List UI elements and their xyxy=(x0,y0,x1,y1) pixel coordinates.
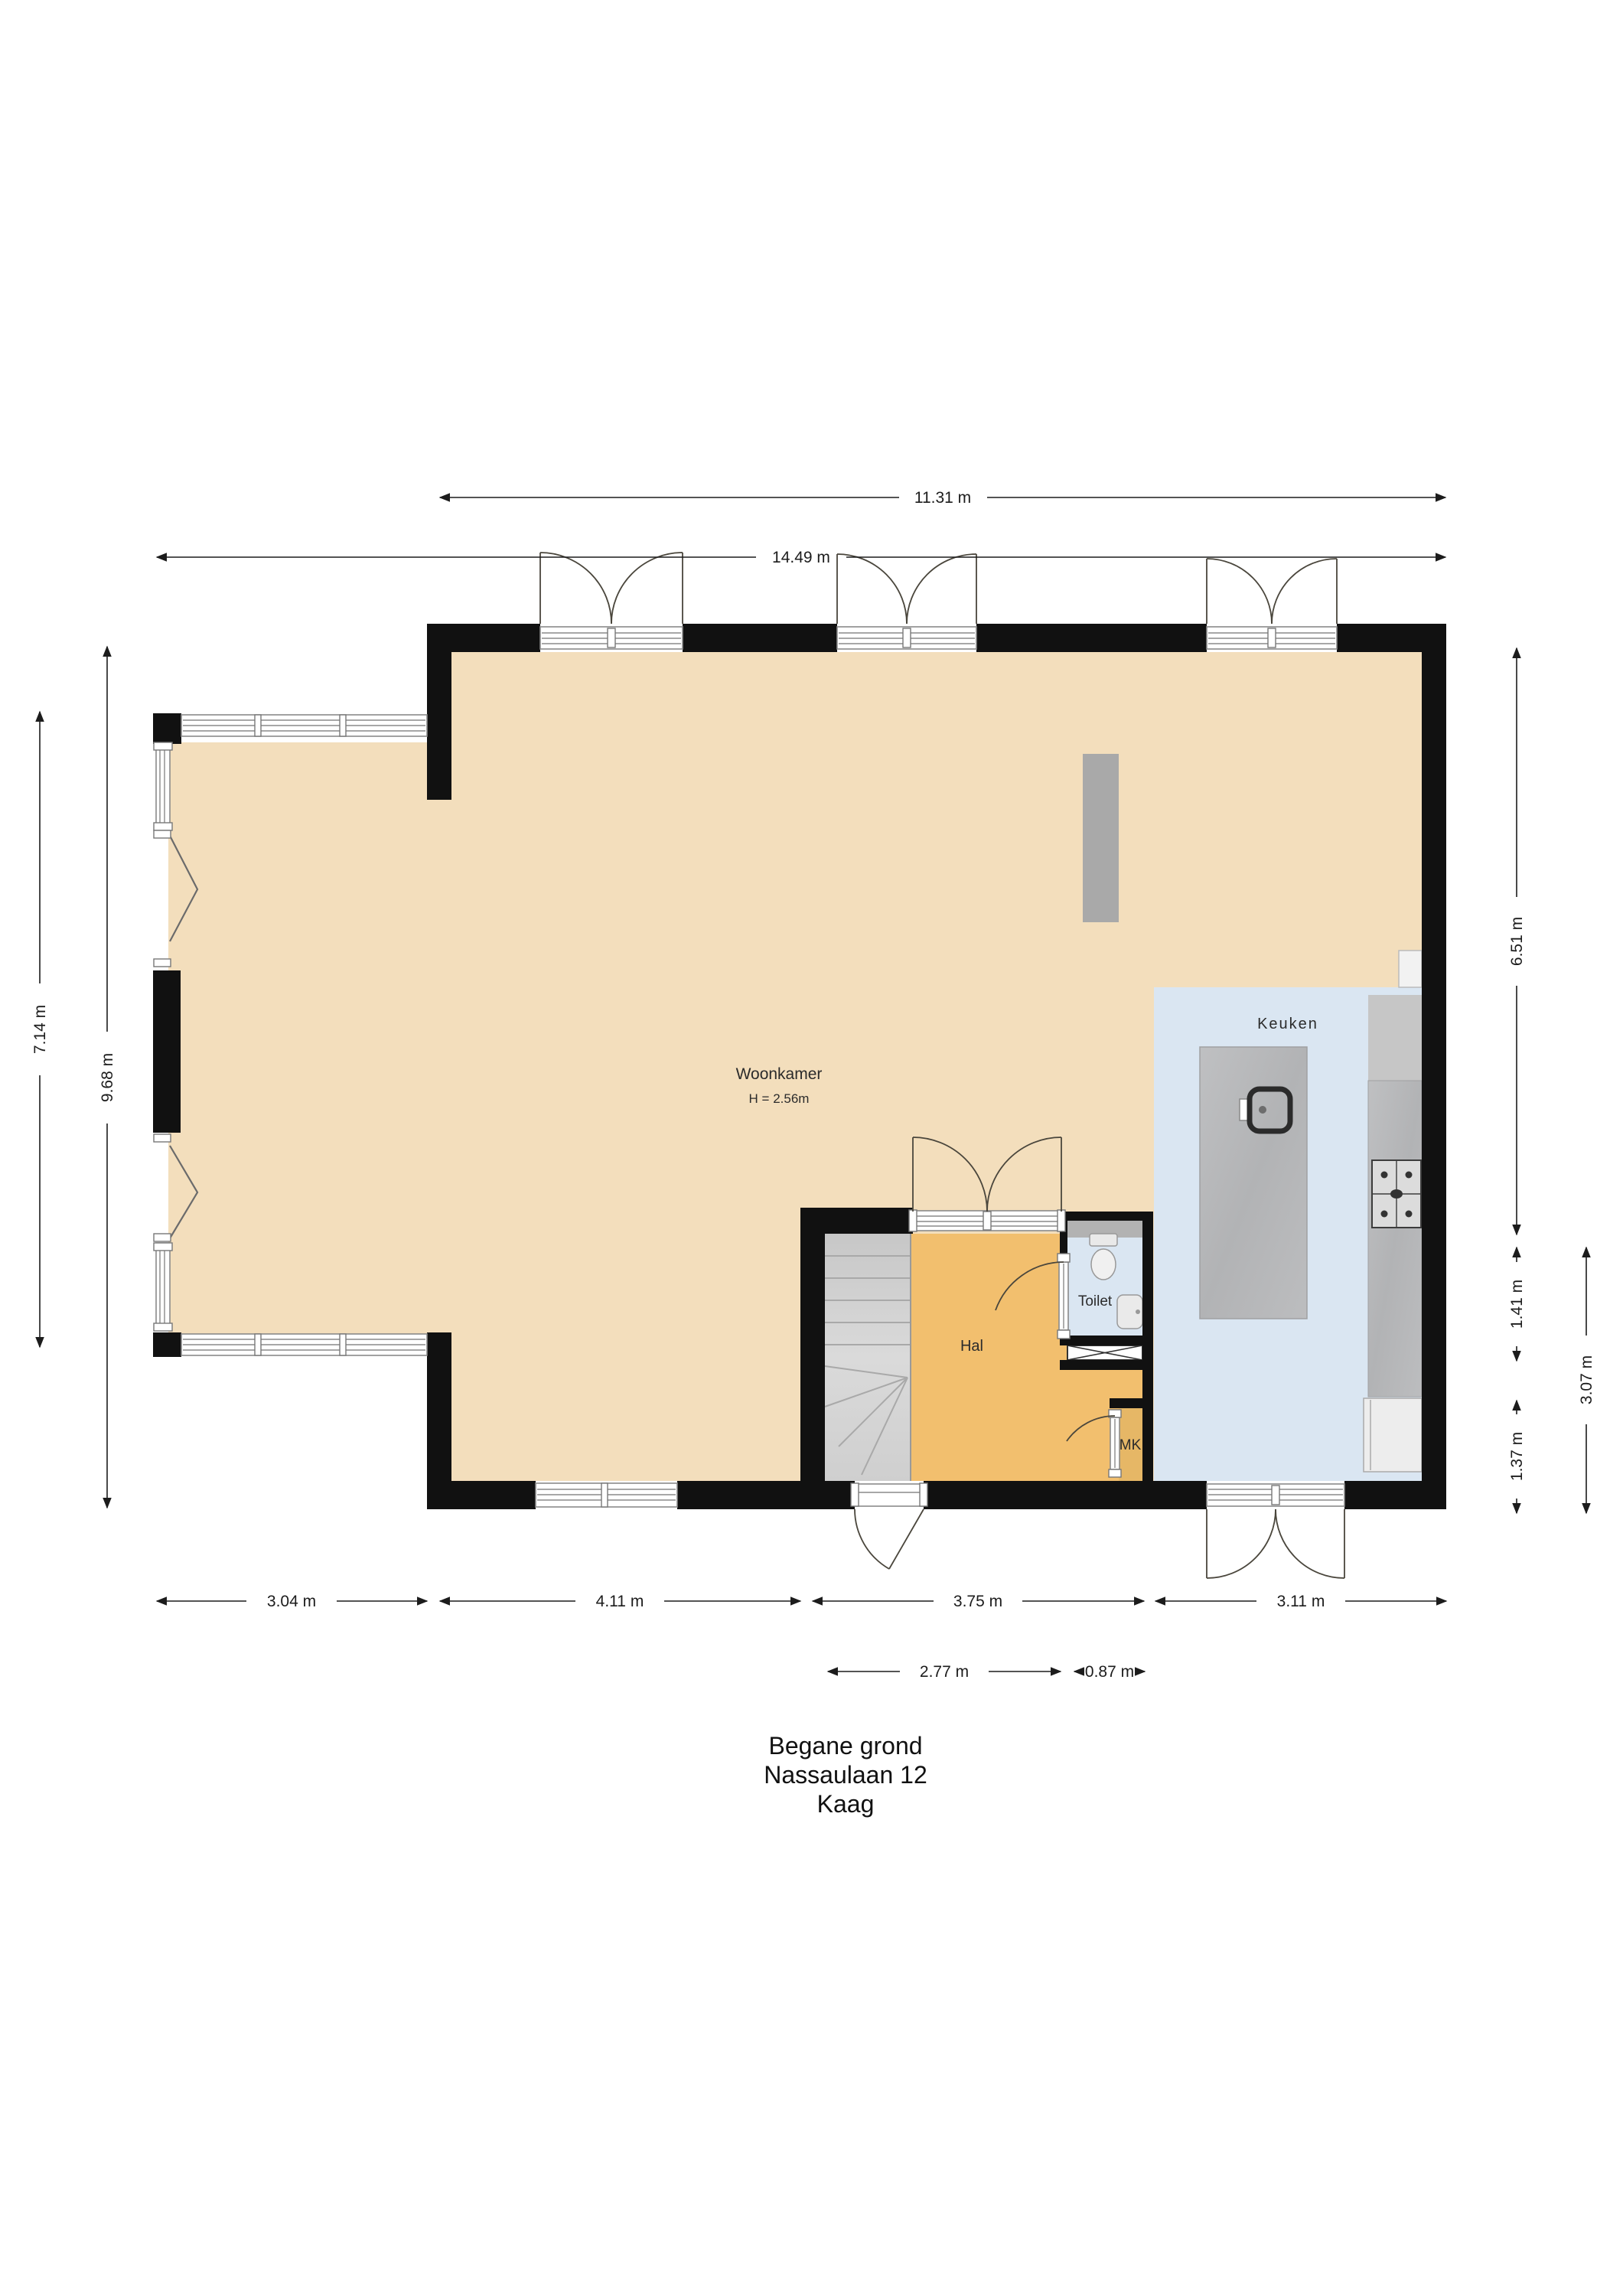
door-swing-arc xyxy=(837,554,907,624)
window-jamb xyxy=(154,1243,172,1251)
door-jamb xyxy=(1058,1330,1070,1339)
french-door-kitchen xyxy=(1207,1484,1344,1578)
left-window-upper xyxy=(154,742,172,830)
bay-pier xyxy=(153,970,181,1133)
left-window-lower xyxy=(154,1243,172,1331)
title-city: Kaag xyxy=(817,1790,875,1818)
stair-wall xyxy=(800,1208,825,1481)
title-street: Nassaulaan 12 xyxy=(764,1761,927,1789)
window-frame xyxy=(156,1243,170,1329)
wall-niche xyxy=(1399,951,1422,987)
dimension-label: 2.77 m xyxy=(920,1663,969,1681)
window-mullion xyxy=(340,715,346,736)
dimension-label: 3.07 m xyxy=(1578,1355,1595,1404)
door-sill xyxy=(855,1484,924,1506)
duct-wall-bottom xyxy=(1060,1360,1153,1370)
wall-top-segment xyxy=(976,624,1207,652)
floorplan-drawing: 11.31 m 14.49 m 7.14 m 9.68 m 6.51 m 1.4… xyxy=(0,0,1623,2296)
mk-label: MK xyxy=(1119,1437,1142,1453)
stairs-area xyxy=(825,1234,911,1481)
floorplan-page: 11.31 m 14.49 m 7.14 m 9.68 m 6.51 m 1.4… xyxy=(0,0,1623,2296)
door-mullion xyxy=(608,628,615,647)
wall-right xyxy=(1422,624,1446,1509)
bay-corner-bottom xyxy=(153,1332,181,1357)
door-swing-arc xyxy=(1276,1509,1344,1578)
door-jamb xyxy=(920,1483,927,1506)
wall-left-lower xyxy=(427,1332,451,1509)
sink-drain xyxy=(1259,1106,1266,1114)
chimney-block xyxy=(1083,754,1119,922)
door-jamb xyxy=(1058,1210,1065,1231)
toilet-wall-top xyxy=(1060,1212,1153,1221)
woonkamer-height-label: H = 2.56m xyxy=(749,1091,810,1106)
window-mullion xyxy=(340,1334,346,1355)
dimension-label: 4.11 m xyxy=(596,1593,644,1610)
dimension-label: 3.04 m xyxy=(267,1593,316,1610)
toilet-wall-bottom xyxy=(1060,1336,1153,1345)
hob-burner xyxy=(1406,1211,1413,1218)
bay-corner-top xyxy=(153,713,181,744)
wall-bottom-segment xyxy=(1344,1481,1446,1509)
dimension-label: 1.37 m xyxy=(1508,1432,1526,1481)
bay-window-bottom xyxy=(181,1334,427,1355)
bay-window-top xyxy=(181,715,427,736)
door-swing-arc xyxy=(1207,1509,1276,1578)
window-frame xyxy=(156,744,170,830)
door-jamb xyxy=(851,1483,859,1506)
door-jamb xyxy=(154,1134,171,1142)
dimension-label: 7.14 m xyxy=(31,1005,49,1054)
door-jamb xyxy=(1058,1254,1070,1262)
dimension-label: 3.11 m xyxy=(1277,1593,1325,1610)
door-jamb xyxy=(154,1234,171,1241)
door-mullion xyxy=(1268,628,1276,647)
hal-label: Hal xyxy=(960,1338,983,1355)
toilet-label: Toilet xyxy=(1078,1293,1113,1309)
door-jamb xyxy=(1109,1469,1121,1477)
door-jamb xyxy=(909,1210,917,1231)
door-jamb xyxy=(154,830,171,838)
door-mullion xyxy=(903,628,911,647)
window-mullion xyxy=(601,1483,608,1507)
kitchen-counter xyxy=(1368,1081,1422,1397)
mk-wall-top xyxy=(1110,1398,1153,1408)
wall-bottom-segment xyxy=(677,1481,855,1509)
gas-hob xyxy=(1372,1160,1421,1228)
wc-bowl xyxy=(1091,1249,1116,1280)
dimension-label: 3.75 m xyxy=(953,1593,1002,1610)
hob-burner xyxy=(1381,1172,1388,1179)
bottom-window xyxy=(536,1483,677,1507)
wall-left-upper xyxy=(427,624,451,800)
french-door-top-left xyxy=(540,553,683,649)
dimension-label: 1.41 m xyxy=(1508,1280,1526,1329)
washbasin-tap xyxy=(1136,1309,1140,1314)
title-floor: Begane grond xyxy=(768,1732,922,1760)
window-jamb xyxy=(154,742,172,750)
hob-burner xyxy=(1406,1172,1413,1179)
woonkamer-label: Woonkamer xyxy=(736,1065,823,1083)
front-door xyxy=(851,1483,927,1569)
door-mullion xyxy=(983,1212,991,1230)
door-swing-arc xyxy=(907,554,976,624)
door-swing-arc xyxy=(1272,559,1337,624)
hob-center-burner xyxy=(1390,1189,1403,1199)
kitchen-appliance xyxy=(1364,1398,1422,1472)
wall-bottom-segment xyxy=(924,1481,1207,1509)
window-mullion xyxy=(255,715,261,736)
door-mullion xyxy=(1272,1486,1279,1505)
hob-burner xyxy=(1381,1211,1388,1218)
wall-top-segment xyxy=(683,624,837,652)
door-swing-arc xyxy=(1207,559,1272,624)
dimension-label: 9.68 m xyxy=(99,1053,116,1102)
dimension-label: 6.51 m xyxy=(1508,917,1526,966)
kitchen-partition-wall xyxy=(1142,1212,1153,1481)
door-swing-arc xyxy=(540,553,611,624)
window-mullion xyxy=(255,1334,261,1355)
door-swing-arc xyxy=(855,1509,889,1569)
door-leaf xyxy=(889,1509,924,1569)
dimension-label: 0.87 m xyxy=(1085,1663,1134,1681)
keuken-label: Keuken xyxy=(1257,1016,1318,1032)
duct-shaft xyxy=(1067,1345,1142,1360)
french-door-top-middle xyxy=(837,554,976,649)
window-jamb xyxy=(154,823,172,830)
door-swing-arc xyxy=(611,553,683,624)
window-jamb xyxy=(154,1323,172,1331)
wc-cistern xyxy=(1090,1234,1117,1246)
door-jamb xyxy=(154,959,171,967)
kitchen-cabinet-upper xyxy=(1368,995,1422,1081)
kitchen-island xyxy=(1200,1047,1307,1319)
dimension-label: 14.49 m xyxy=(772,549,830,566)
dimension-label: 11.31 m xyxy=(914,489,971,507)
title-block: Begane grond Nassaulaan 12 Kaag xyxy=(764,1732,927,1818)
french-door-top-right xyxy=(1207,559,1337,649)
